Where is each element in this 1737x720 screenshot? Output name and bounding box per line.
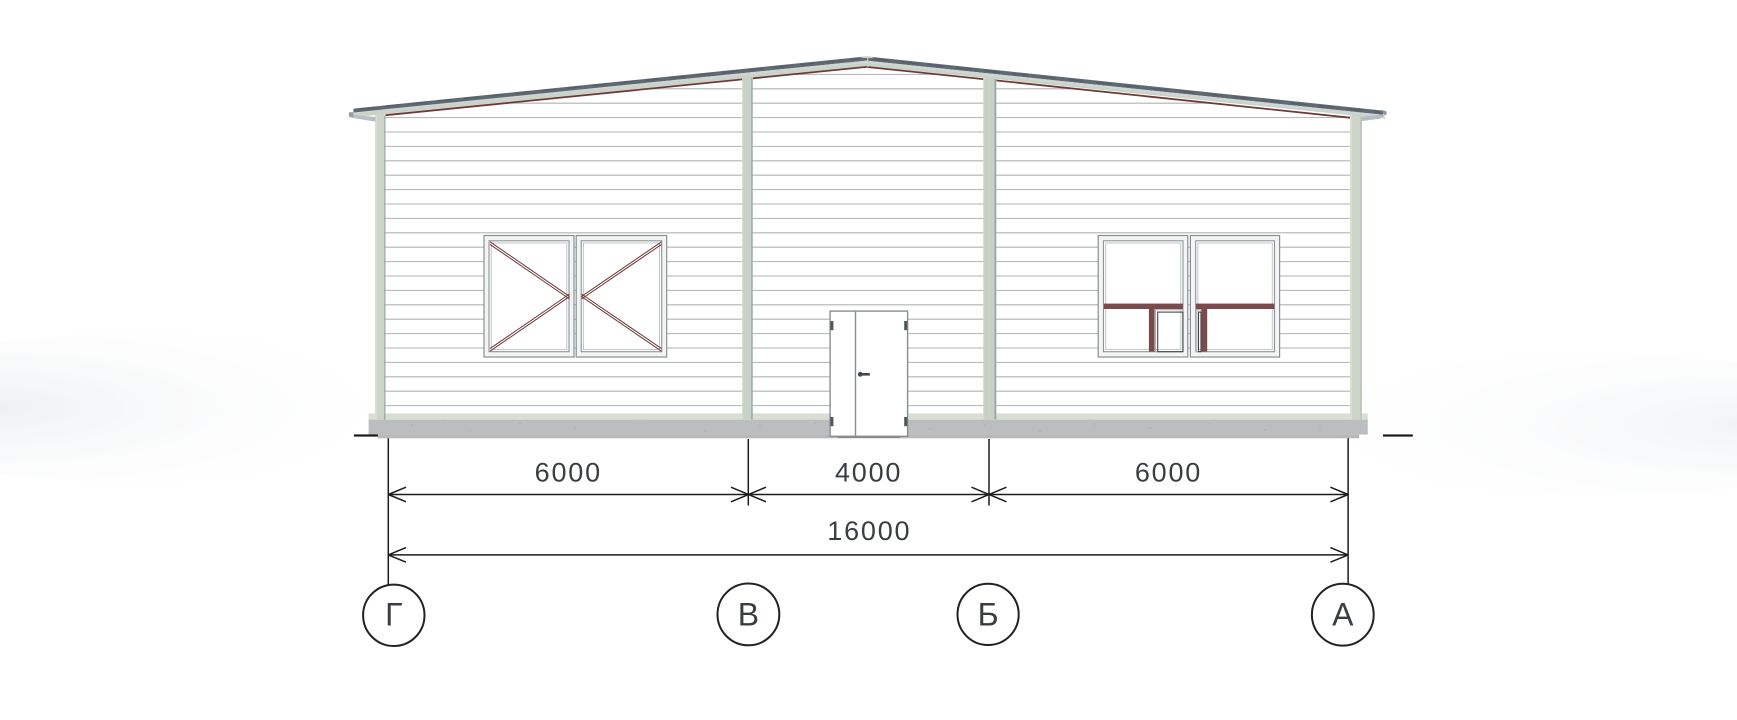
svg-text:Г: Г bbox=[385, 597, 402, 633]
svg-text:6000: 6000 bbox=[535, 457, 602, 487]
svg-text:В: В bbox=[738, 596, 759, 632]
svg-text:16000: 16000 bbox=[827, 516, 911, 546]
svg-text:Б: Б bbox=[978, 596, 999, 632]
svg-text:4000: 4000 bbox=[835, 457, 902, 487]
svg-text:А: А bbox=[1332, 597, 1354, 633]
svg-text:6000: 6000 bbox=[1135, 457, 1202, 487]
